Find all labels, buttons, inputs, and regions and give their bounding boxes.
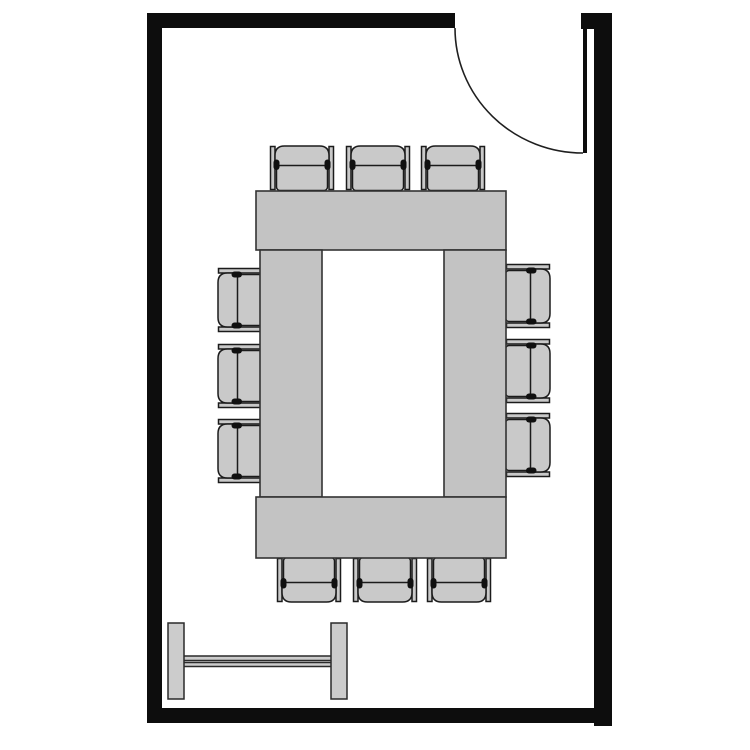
table-section-top[interactable] [256,191,506,250]
freestanding-board[interactable] [168,623,347,699]
table-section-right[interactable] [444,250,506,497]
chair-top-2[interactable] [347,146,410,191]
wall-right[interactable] [594,13,612,726]
chair-right-2[interactable] [506,340,551,403]
conference-table[interactable] [256,191,506,558]
door-jamb [581,13,612,29]
door-leaf[interactable] [583,27,587,153]
wall-bottom[interactable] [147,708,612,723]
chair-top-1[interactable] [271,146,334,191]
chair-bottom-1[interactable] [278,558,341,603]
chair-left-2[interactable] [218,345,263,408]
board-rail-bottom [169,663,346,667]
door-swing-arc [455,28,583,153]
door[interactable] [455,27,587,153]
board-leg-right[interactable] [331,623,347,699]
board-leg-left[interactable] [168,623,184,699]
chair-left-1[interactable] [218,269,263,332]
chair-top-3[interactable] [422,146,485,191]
chair-right-1[interactable] [506,265,551,328]
board-rail-top [169,656,346,661]
floor-plan-canvas [0,0,750,750]
chair-bottom-3[interactable] [428,558,491,603]
floor-plan-drawing [0,0,750,750]
chair-bottom-2[interactable] [354,558,417,603]
wall-top[interactable] [147,13,455,28]
table-section-bottom[interactable] [256,497,506,558]
chair-right-3[interactable] [506,414,551,477]
chair-left-3[interactable] [218,420,263,483]
table-section-left[interactable] [260,250,322,497]
wall-left[interactable] [147,13,162,723]
